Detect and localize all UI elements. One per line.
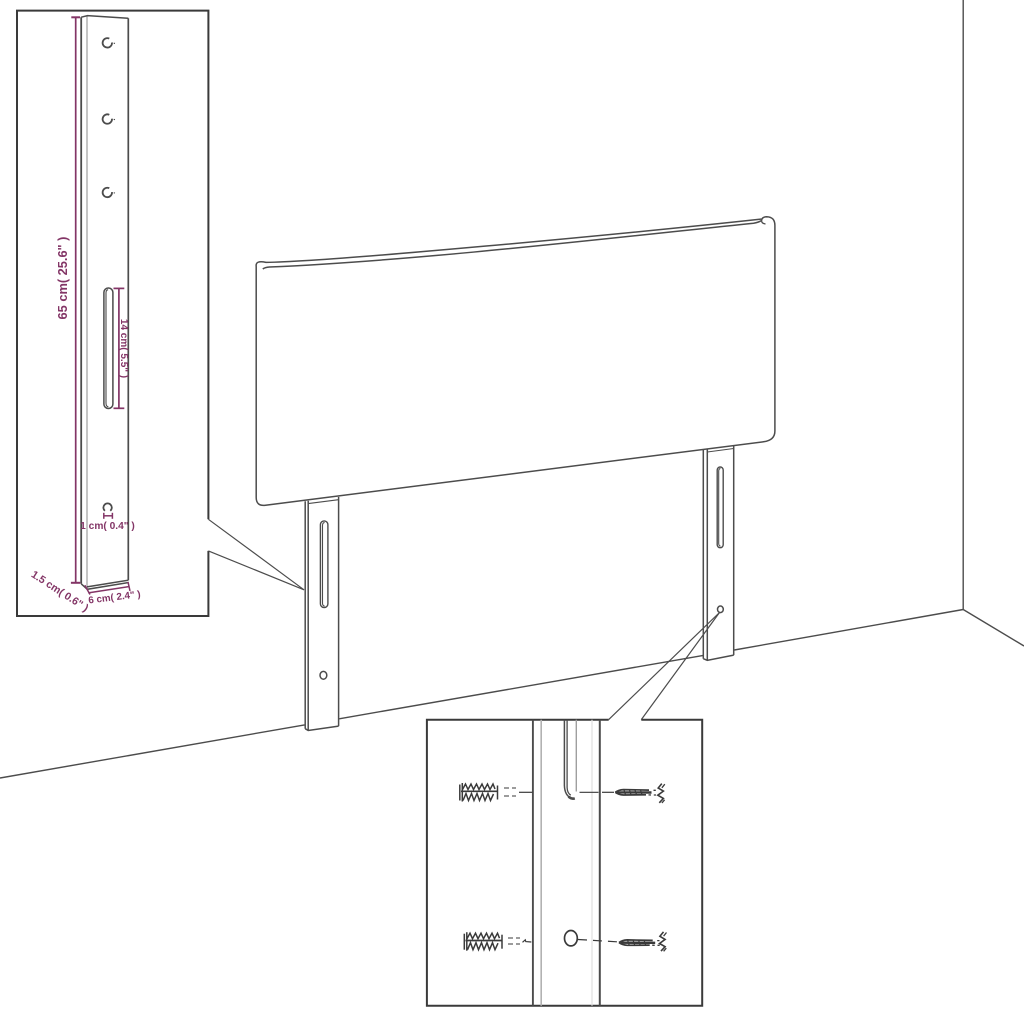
- svg-text:1 cm( 0.4" ): 1 cm( 0.4" ): [80, 521, 135, 532]
- svg-text:65 cm( 25.6" ): 65 cm( 25.6" ): [55, 237, 70, 320]
- svg-text:14 cm( 5.5" ): 14 cm( 5.5" ): [118, 319, 129, 378]
